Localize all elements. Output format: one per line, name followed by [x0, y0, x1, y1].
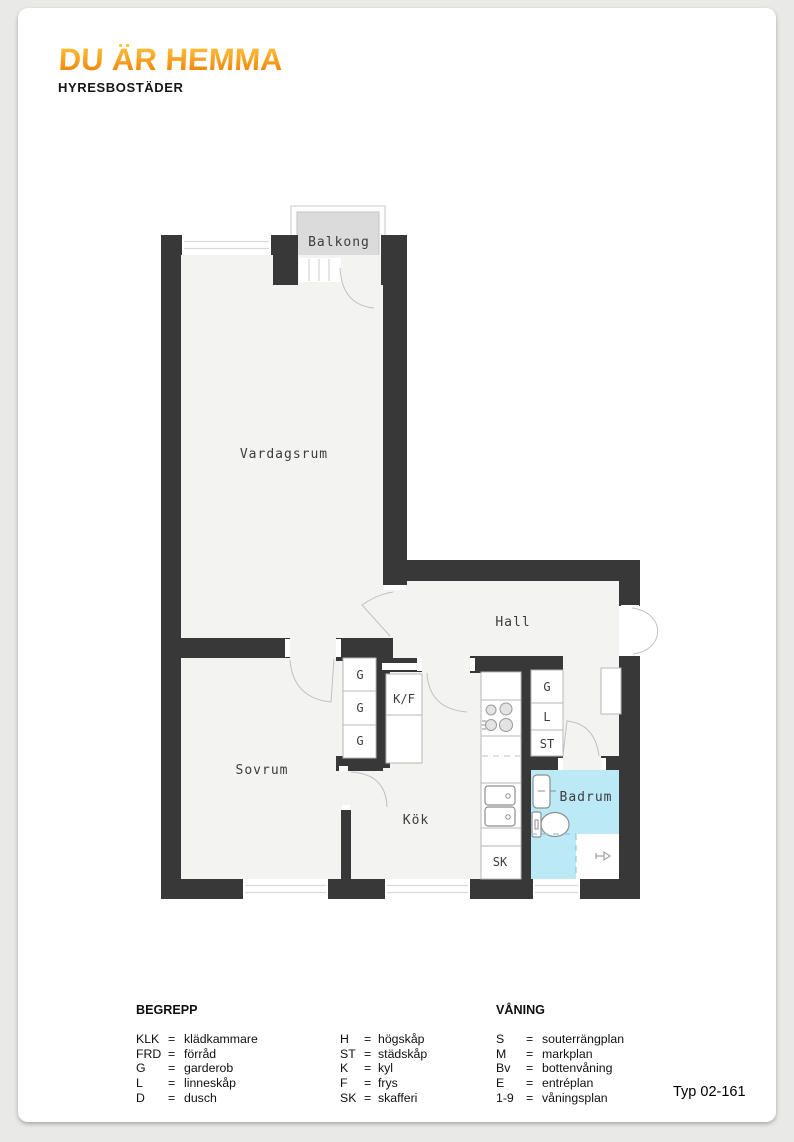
legend-eq: = — [168, 1032, 184, 1047]
legend-eq: = — [168, 1047, 184, 1062]
room-label-vardagsrum: Vardagsrum — [240, 447, 328, 462]
legend-row: F=frys — [340, 1076, 427, 1091]
label-garderob-2: G — [356, 701, 363, 715]
legend-eq: = — [526, 1061, 542, 1076]
legend-term: frys — [378, 1076, 398, 1091]
legend-abbr: E — [496, 1076, 526, 1091]
plan-type-label: Typ 02-161 — [673, 1084, 746, 1100]
legend-term: garderob — [184, 1061, 233, 1076]
legend-row: ST=städskåp — [340, 1047, 427, 1062]
toilet-icon — [532, 812, 569, 837]
page-card: DU ÄR HEMMA HYRESBOSTÄDER — [18, 8, 776, 1122]
legend-term: souterrängplan — [542, 1032, 624, 1047]
legend-term: kyl — [378, 1061, 393, 1076]
legend-row: E=entréplan — [496, 1076, 624, 1091]
legend-row: SK=skafferi — [340, 1091, 427, 1106]
legend-term: skafferi — [378, 1091, 417, 1106]
legend-abbr: 1-9 — [496, 1091, 526, 1106]
legend-eq: = — [364, 1076, 378, 1091]
legend-abbr: SK — [340, 1091, 364, 1106]
legend-term: våningsplan — [542, 1091, 608, 1106]
legend-term: linneskåp — [184, 1076, 236, 1091]
legend-term: högskåp — [378, 1032, 425, 1047]
legend-term: bottenvåning — [542, 1061, 612, 1076]
legend-abbr: KLK — [136, 1032, 168, 1047]
legend-eq: = — [168, 1061, 184, 1076]
legend-eq: = — [526, 1047, 542, 1062]
label-garderob-4: G — [543, 680, 550, 694]
legend-term: markplan — [542, 1047, 593, 1062]
legend-term: städskåp — [378, 1047, 427, 1062]
legend-abbr: G — [136, 1061, 168, 1076]
legend-term: entréplan — [542, 1076, 593, 1091]
legend-eq: = — [364, 1091, 378, 1106]
label-garderob-3: G — [356, 734, 363, 748]
room-label-hall: Hall — [495, 615, 530, 630]
entry-niche — [601, 668, 621, 714]
entry-door-arc — [632, 608, 658, 654]
room-label-kok: Kök — [403, 813, 429, 828]
legend-row: G=garderob — [136, 1061, 258, 1076]
legend-abbr: ST — [340, 1047, 364, 1062]
legend-term: klädkammare — [184, 1032, 258, 1047]
label-linneskap: L — [543, 710, 550, 724]
legend-eq: = — [526, 1032, 542, 1047]
room-label-badrum: Badrum — [560, 790, 613, 805]
legend-abbr: D — [136, 1091, 168, 1106]
legend-row: FRD=förråd — [136, 1047, 258, 1062]
legend-row: K=kyl — [340, 1061, 427, 1076]
legend-eq: = — [364, 1047, 378, 1062]
label-skafferi: SK — [493, 855, 508, 869]
legend-abbr: K — [340, 1061, 364, 1076]
legend-row: M=markplan — [496, 1047, 624, 1062]
legend-begrepp-title: BEGREPP — [136, 1003, 198, 1017]
room-label-balkong: Balkong — [308, 235, 370, 250]
legend-row: H=högskåp — [340, 1032, 427, 1047]
room-label-sovrum: Sovrum — [236, 763, 289, 778]
legend-row: KLK=klädkammare — [136, 1032, 258, 1047]
legend-row: Bv=bottenvåning — [496, 1061, 624, 1076]
legend-row: D=dusch — [136, 1091, 258, 1106]
legend-abbr: H — [340, 1032, 364, 1047]
legend-eq: = — [364, 1032, 378, 1047]
legend-eq: = — [168, 1091, 184, 1106]
legend-abbr: M — [496, 1047, 526, 1062]
legend-begrepp-col2: H=högskåp ST=städskåp K=kyl F=frys SK=sk… — [340, 1032, 427, 1106]
legend-eq: = — [526, 1076, 542, 1091]
legend-eq: = — [168, 1076, 184, 1091]
legend-term: dusch — [184, 1091, 217, 1106]
legend-row: L=linneskåp — [136, 1076, 258, 1091]
legend-abbr: FRD — [136, 1047, 168, 1062]
legend-abbr: L — [136, 1076, 168, 1091]
legend-abbr: Bv — [496, 1061, 526, 1076]
legend-row: S=souterrängplan — [496, 1032, 624, 1047]
label-stadskap: ST — [540, 737, 554, 751]
legend-eq: = — [526, 1091, 542, 1106]
label-garderob-1: G — [356, 668, 363, 682]
legend-begrepp-col1: KLK=klädkammare FRD=förråd G=garderob L=… — [136, 1032, 258, 1106]
legend-abbr: S — [496, 1032, 526, 1047]
label-kyl-frys: K/F — [393, 692, 415, 706]
legend-abbr: F — [340, 1076, 364, 1091]
legend-vaning-col: S=souterrängplan M=markplan Bv=bottenvån… — [496, 1032, 624, 1106]
legend-term: förråd — [184, 1047, 216, 1062]
legend-vaning-title: VÅNING — [496, 1003, 545, 1017]
floor-plan: Balkong Vardagsrum Hall Sovrum Kök Badru… — [18, 8, 794, 1142]
legend-row: 1-9=våningsplan — [496, 1091, 624, 1106]
legend-eq: = — [364, 1061, 378, 1076]
fridge-freezer-unit — [386, 674, 422, 763]
kitchen-counter — [481, 672, 521, 879]
